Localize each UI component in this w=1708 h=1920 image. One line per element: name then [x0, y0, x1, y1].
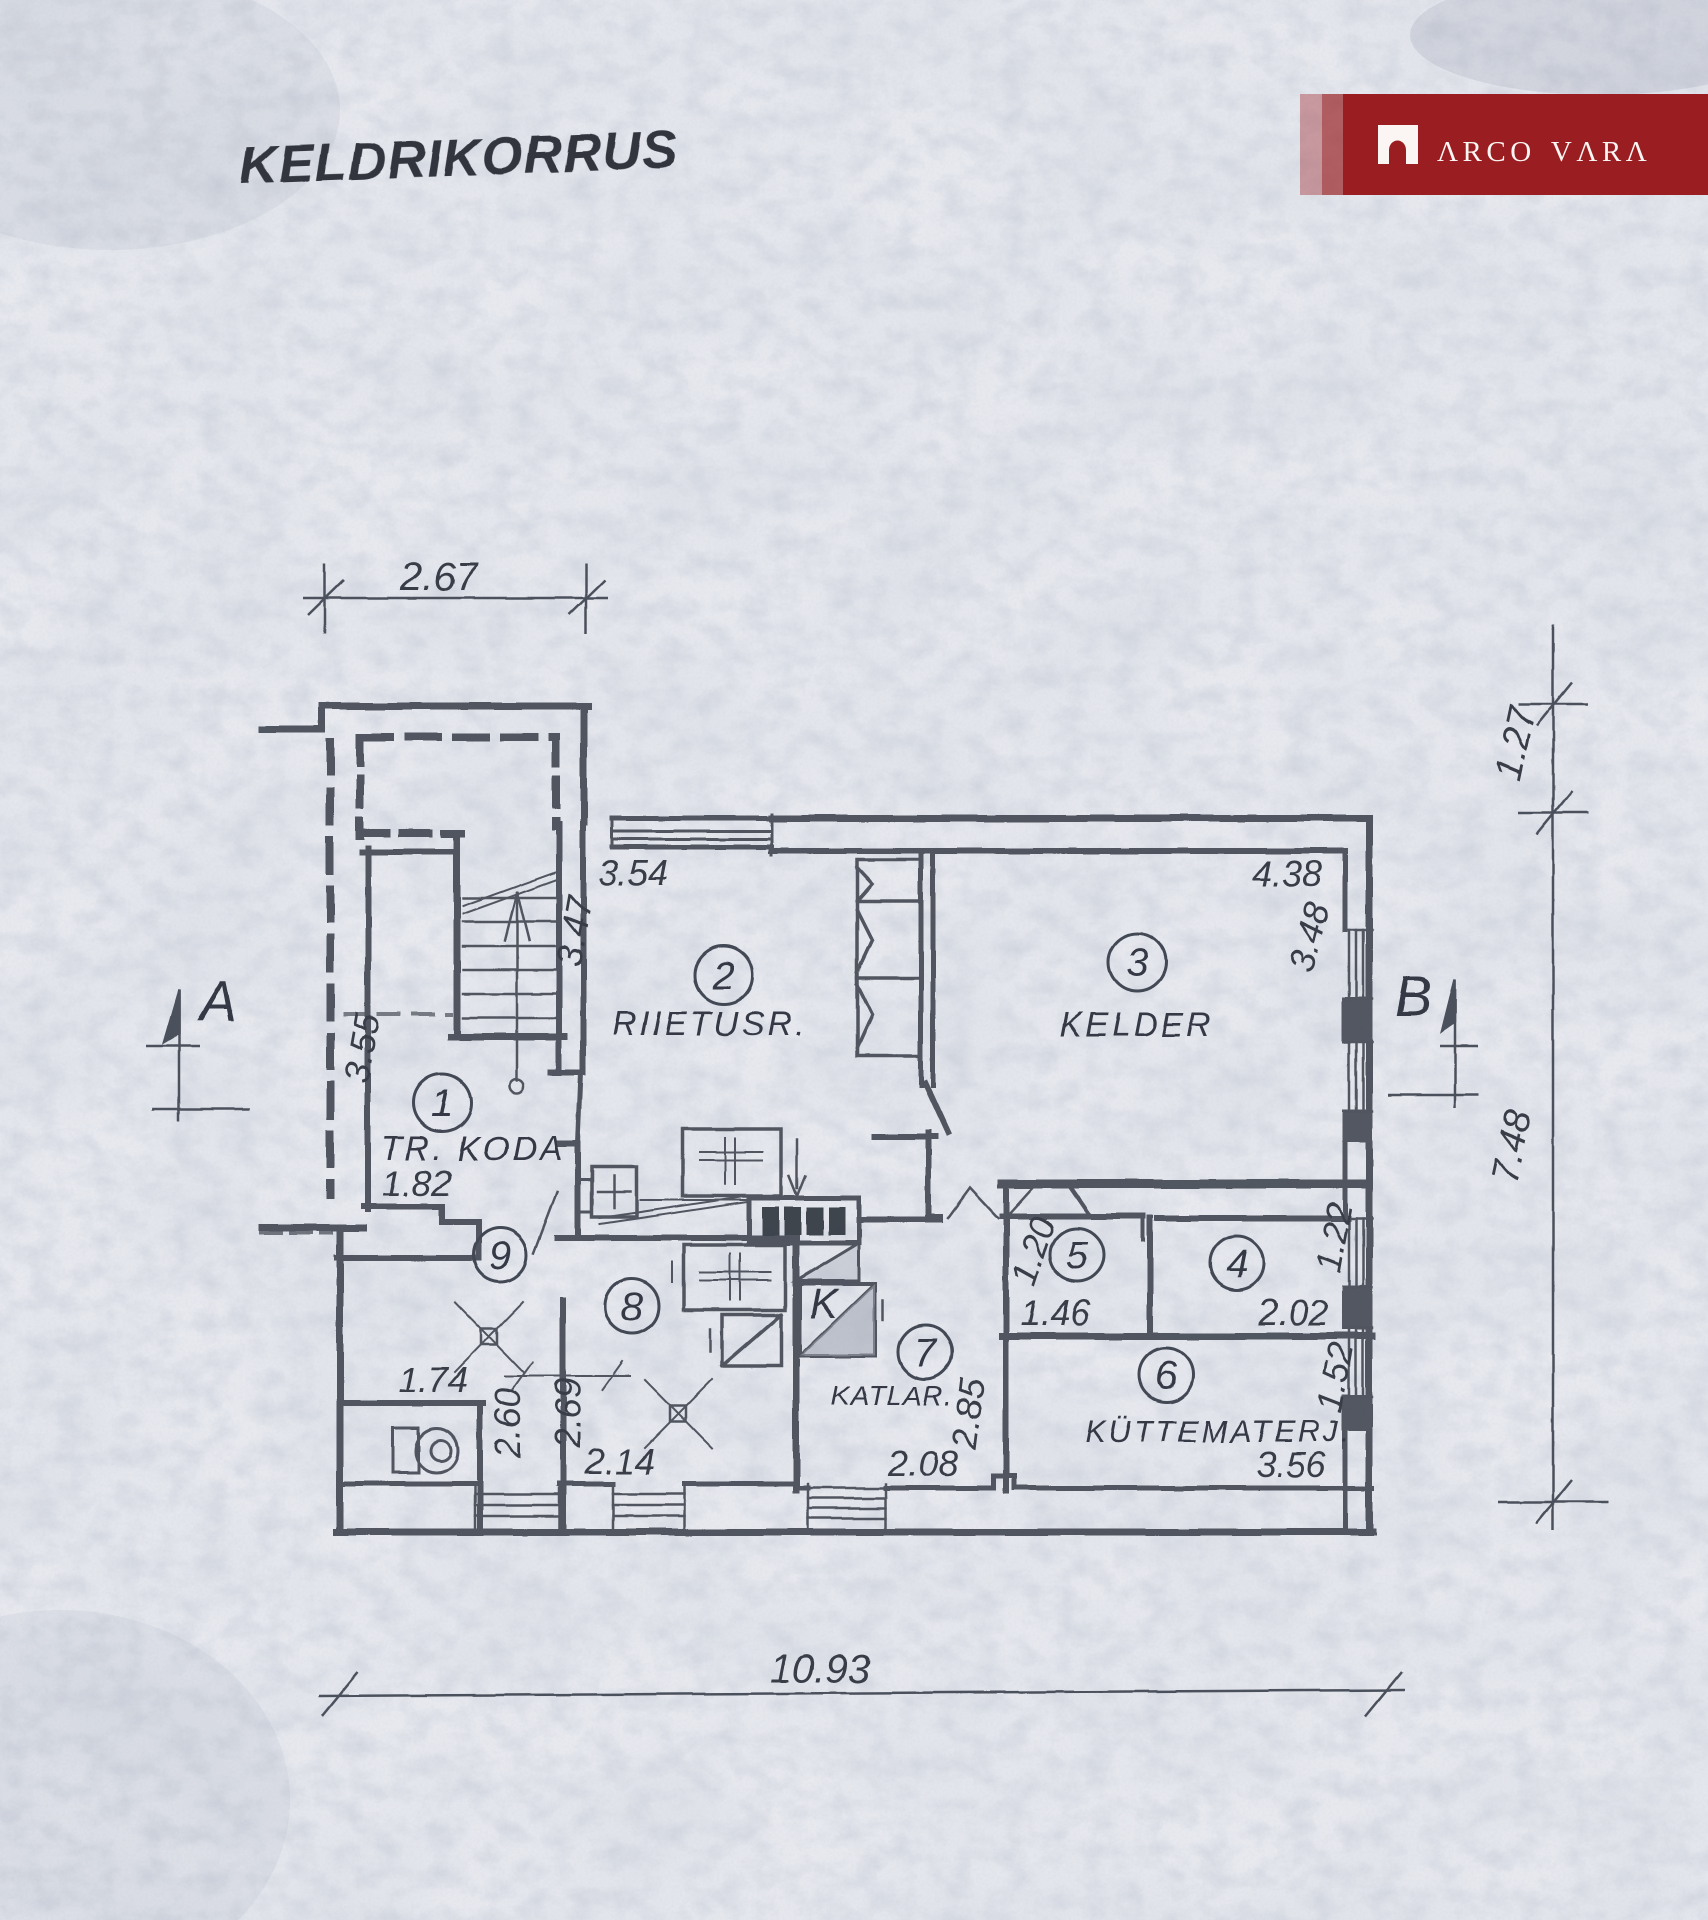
- svg-text:KATLAR.: KATLAR.: [831, 1380, 953, 1411]
- svg-text:1.74: 1.74: [398, 1359, 468, 1400]
- svg-text:1: 1: [431, 1082, 453, 1126]
- svg-text:5: 5: [1066, 1234, 1089, 1278]
- svg-text:2.60: 2.60: [487, 1388, 528, 1459]
- svg-text:2: 2: [712, 954, 735, 998]
- svg-text:2.69: 2.69: [547, 1378, 588, 1449]
- svg-text:1.82: 1.82: [382, 1163, 452, 1204]
- svg-text:RIIETUSR.: RIIETUSR.: [612, 1005, 807, 1043]
- svg-text:3.56: 3.56: [1256, 1444, 1327, 1485]
- svg-text:3: 3: [1126, 941, 1148, 985]
- svg-text:KELDER: KELDER: [1060, 1006, 1214, 1044]
- svg-text:4.38: 4.38: [1252, 853, 1322, 894]
- svg-text:2.02: 2.02: [1257, 1292, 1328, 1333]
- svg-text:A: A: [197, 969, 237, 1032]
- svg-text:6: 6: [1155, 1354, 1178, 1398]
- svg-text:1.46: 1.46: [1020, 1292, 1091, 1333]
- svg-text:3.54: 3.54: [598, 852, 668, 893]
- svg-text:K: K: [810, 1280, 841, 1327]
- svg-text:B: B: [1395, 964, 1432, 1027]
- svg-text:9: 9: [489, 1234, 511, 1278]
- svg-text:8: 8: [621, 1285, 644, 1329]
- svg-text:2.85: 2.85: [943, 1375, 992, 1452]
- svg-text:ΛRCO VΛRΛ: ΛRCO VΛRΛ: [1437, 136, 1651, 168]
- svg-text:2.08: 2.08: [887, 1443, 958, 1484]
- svg-text:7: 7: [914, 1331, 938, 1375]
- svg-text:2.67: 2.67: [399, 555, 480, 599]
- svg-text:10.93: 10.93: [770, 1647, 870, 1691]
- svg-text:4: 4: [1226, 1242, 1248, 1286]
- svg-text:2.14: 2.14: [584, 1441, 655, 1482]
